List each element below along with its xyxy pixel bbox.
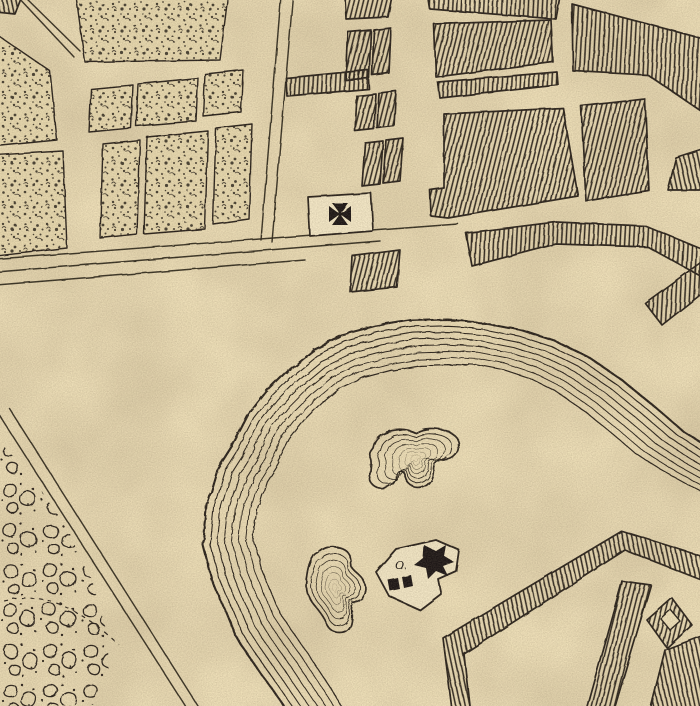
- map-viewport[interactable]: O.: [0, 0, 700, 706]
- map-canvas[interactable]: O.: [0, 0, 700, 706]
- paper-grain: [0, 0, 700, 706]
